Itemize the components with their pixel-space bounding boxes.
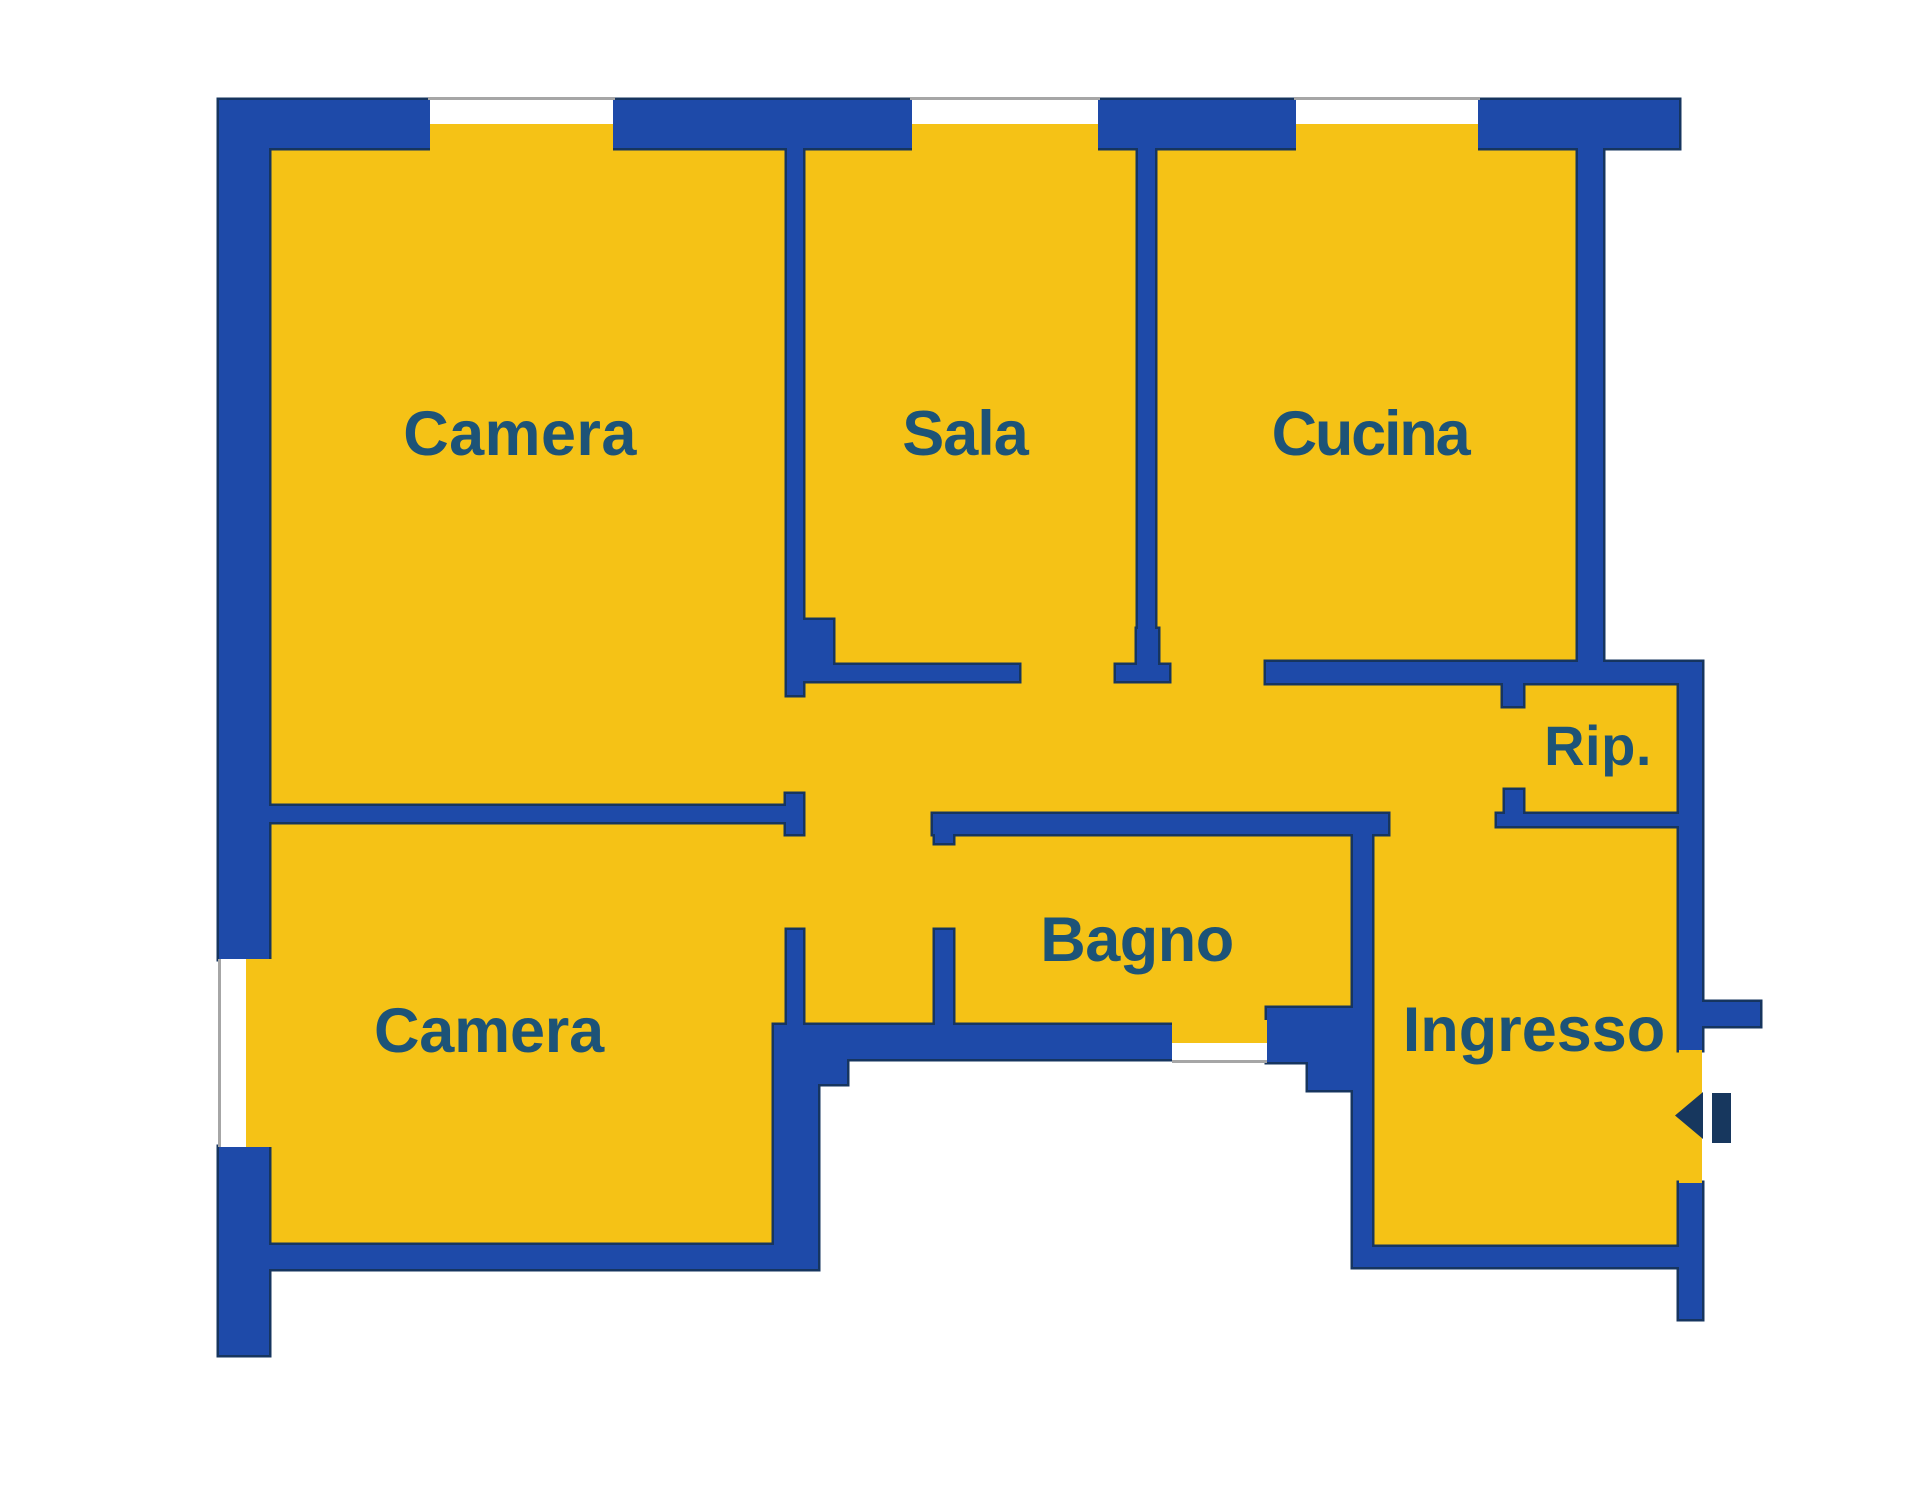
svg-text:Camera: Camera bbox=[374, 996, 605, 1066]
svg-text:Cucina: Cucina bbox=[1272, 399, 1472, 469]
svg-text:Camera: Camera bbox=[403, 399, 637, 469]
svg-text:Ingresso: Ingresso bbox=[1403, 995, 1666, 1065]
svg-text:Sala: Sala bbox=[902, 399, 1030, 469]
svg-text:Bagno: Bagno bbox=[1040, 905, 1233, 975]
svg-text:Rip.: Rip. bbox=[1544, 714, 1652, 777]
